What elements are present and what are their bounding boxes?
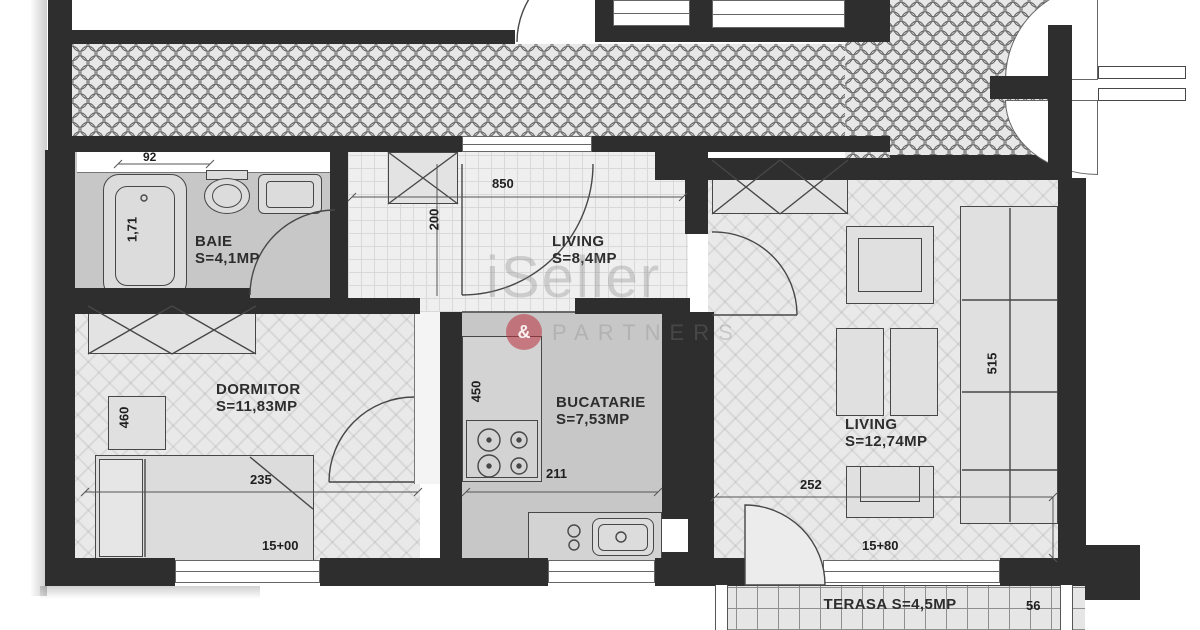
wall xyxy=(990,76,1050,99)
room-label-baie: BAIE S=4,1MP xyxy=(195,233,260,268)
window-kitchen xyxy=(548,560,655,583)
wall xyxy=(1000,558,1086,586)
watermark-brand: iSeller xyxy=(486,244,661,311)
coffee-table-2 xyxy=(890,328,938,416)
room-area: S=7,53MP xyxy=(556,411,646,428)
room-area: S=12,74MP xyxy=(845,433,927,450)
room-label-bucatarie: BUCATARIE S=7,53MP xyxy=(556,394,646,429)
bathroom-sink-basin xyxy=(266,181,314,208)
room-name: DORMITOR xyxy=(216,381,301,398)
dim-hall-depth: 200 xyxy=(427,200,442,240)
wall xyxy=(45,298,420,314)
terrace-edge-left xyxy=(715,585,728,630)
tv-stand-inner xyxy=(860,466,920,502)
watermark: iSeller & PARTNERS xyxy=(480,244,800,354)
bed-pillow xyxy=(99,459,143,557)
wall xyxy=(320,558,463,586)
dim-terrace-edge: 56 xyxy=(1026,598,1040,613)
sofa xyxy=(960,206,1058,524)
wall xyxy=(440,312,462,562)
dim-bath-niche: 92 xyxy=(143,150,156,164)
terrace-edge-right xyxy=(1060,585,1073,630)
entrance-door-leaf-top xyxy=(1098,66,1186,79)
kitchen-sink-basin xyxy=(598,524,648,551)
stove xyxy=(466,420,538,478)
window-top-2 xyxy=(712,0,845,28)
dim-living-width: 252 xyxy=(800,477,822,492)
wall xyxy=(45,150,75,586)
hall-wardrobe xyxy=(388,152,458,204)
wall xyxy=(655,152,688,180)
floor-plan: BAIE S=4,1MP LIVING S=8,4MP DORMITOR S=1… xyxy=(0,0,1200,630)
wall xyxy=(685,152,708,234)
entrance-door-leaf-bottom xyxy=(1098,88,1186,101)
room-name: LIVING xyxy=(845,416,927,433)
shadow-bottom xyxy=(40,586,260,599)
watermark-subtitle: PARTNERS xyxy=(552,320,742,346)
dim-kitchen-counter: 450 xyxy=(469,372,484,412)
dim-bathtub: 1,71 xyxy=(125,210,140,250)
window-top-1 xyxy=(613,0,690,26)
wall xyxy=(655,558,745,586)
wall xyxy=(1048,25,1072,173)
room-area: S=11,83MP xyxy=(216,398,301,415)
wall xyxy=(1058,178,1086,560)
dim-sofa: 515 xyxy=(985,344,1000,384)
wall xyxy=(690,158,1072,180)
dim-living-window: 15+80 xyxy=(862,538,899,553)
watermark-ampersand-badge: & xyxy=(506,314,542,350)
terrace-paving-top xyxy=(48,44,890,136)
dim-kitchen-width: 211 xyxy=(546,466,567,481)
wall xyxy=(45,558,175,586)
window-bedroom xyxy=(175,560,320,583)
dim-bedroom-window: 15+00 xyxy=(262,538,299,553)
wall xyxy=(1085,545,1140,600)
toilet-bowl-inner xyxy=(212,184,242,208)
armchair-inner xyxy=(858,238,922,292)
window-living xyxy=(823,560,1000,583)
room-area: S=4,1MP xyxy=(195,250,260,267)
coffee-table-1 xyxy=(836,328,884,416)
room-name: BUCATARIE xyxy=(556,394,646,411)
dim-hall-width: 850 xyxy=(492,176,514,191)
wall xyxy=(330,152,348,304)
room-name: BAIE xyxy=(195,233,260,250)
wall xyxy=(60,30,515,44)
room-label-living: LIVING S=12,74MP xyxy=(845,416,927,451)
wall xyxy=(463,558,548,586)
hall-terrace-doorway xyxy=(462,136,592,152)
dim-bedroom-width: 235 xyxy=(250,472,272,487)
wall xyxy=(48,0,72,152)
bath-top-niche xyxy=(77,152,330,173)
room-label-terasa: TERASA S=4,5MP xyxy=(770,596,1010,613)
corridor-recess xyxy=(414,312,442,484)
watermark-ampersand: & xyxy=(518,322,531,343)
room-label-dormitor: DORMITOR S=11,83MP xyxy=(216,381,301,416)
dim-bedroom-depth: 460 xyxy=(117,398,132,438)
